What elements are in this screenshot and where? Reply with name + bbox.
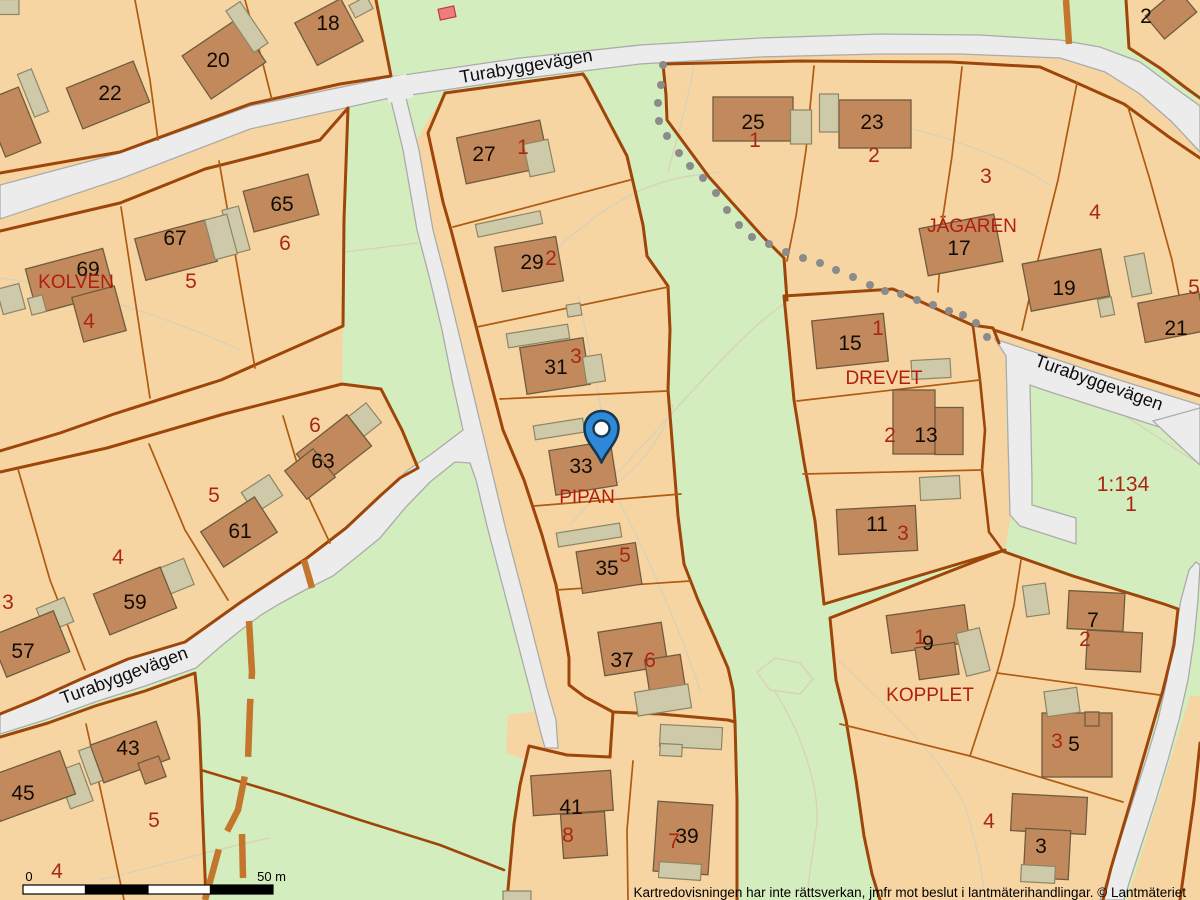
svg-text:5: 5 — [148, 809, 160, 832]
svg-text:2: 2 — [1079, 628, 1091, 651]
svg-text:63: 63 — [311, 450, 334, 473]
svg-text:5: 5 — [619, 544, 631, 567]
svg-text:1:134: 1:134 — [1097, 473, 1150, 496]
svg-text:13: 13 — [914, 424, 937, 447]
svg-text:37: 37 — [610, 649, 633, 672]
svg-text:5: 5 — [1188, 276, 1200, 299]
svg-text:1: 1 — [749, 129, 761, 152]
svg-text:4: 4 — [1089, 201, 1101, 224]
svg-text:4: 4 — [112, 546, 124, 569]
svg-text:0: 0 — [25, 869, 32, 884]
svg-text:6: 6 — [644, 649, 656, 672]
svg-text:61: 61 — [228, 520, 251, 543]
svg-text:17: 17 — [947, 237, 970, 260]
svg-text:7: 7 — [668, 830, 680, 853]
svg-text:3: 3 — [570, 345, 582, 368]
svg-text:3: 3 — [1035, 835, 1047, 858]
svg-text:35: 35 — [595, 557, 618, 580]
svg-text:PIPAN: PIPAN — [559, 487, 615, 508]
svg-text:JÄGAREN: JÄGAREN — [927, 216, 1017, 237]
svg-text:KOLVEN: KOLVEN — [38, 272, 114, 293]
svg-text:65: 65 — [270, 193, 293, 216]
svg-text:4: 4 — [983, 810, 995, 833]
svg-text:1: 1 — [914, 626, 926, 649]
svg-text:33: 33 — [569, 455, 592, 478]
svg-text:1: 1 — [517, 136, 529, 159]
svg-text:23: 23 — [860, 111, 883, 134]
svg-text:29: 29 — [520, 251, 543, 274]
svg-text:67: 67 — [163, 227, 186, 250]
svg-text:22: 22 — [98, 82, 121, 105]
svg-text:18: 18 — [316, 12, 339, 35]
svg-text:4: 4 — [51, 860, 63, 883]
svg-text:KOPPLET: KOPPLET — [886, 685, 974, 706]
svg-text:15: 15 — [838, 332, 861, 355]
svg-text:2: 2 — [868, 144, 880, 167]
svg-text:41: 41 — [559, 796, 582, 819]
svg-text:59: 59 — [123, 591, 146, 614]
svg-text:4: 4 — [83, 310, 95, 333]
svg-text:2: 2 — [1140, 5, 1152, 28]
svg-text:5: 5 — [185, 270, 197, 293]
svg-text:8: 8 — [562, 824, 574, 847]
svg-text:Kartredovisningen har inte rät: Kartredovisningen har inte rättsverkan, … — [634, 885, 1187, 900]
svg-text:2: 2 — [884, 424, 896, 447]
svg-text:27: 27 — [472, 143, 495, 166]
svg-text:57: 57 — [11, 640, 34, 663]
svg-text:31: 31 — [544, 356, 567, 379]
svg-text:3: 3 — [897, 522, 909, 545]
svg-text:50 m: 50 m — [257, 869, 286, 884]
svg-text:6: 6 — [279, 232, 291, 255]
svg-text:5: 5 — [1068, 733, 1080, 756]
svg-text:20: 20 — [206, 49, 229, 72]
svg-text:11: 11 — [866, 513, 888, 536]
svg-text:1: 1 — [872, 317, 884, 340]
svg-text:19: 19 — [1052, 277, 1075, 300]
svg-text:6: 6 — [309, 414, 321, 437]
svg-text:45: 45 — [11, 782, 34, 805]
svg-text:DREVET: DREVET — [845, 368, 922, 389]
svg-text:21: 21 — [1164, 317, 1187, 340]
svg-text:5: 5 — [208, 484, 220, 507]
svg-text:43: 43 — [116, 737, 139, 760]
svg-text:3: 3 — [1051, 730, 1063, 753]
svg-text:1: 1 — [1125, 493, 1137, 516]
svg-text:3: 3 — [2, 591, 14, 614]
svg-text:3: 3 — [980, 165, 992, 188]
svg-text:2: 2 — [545, 247, 557, 270]
